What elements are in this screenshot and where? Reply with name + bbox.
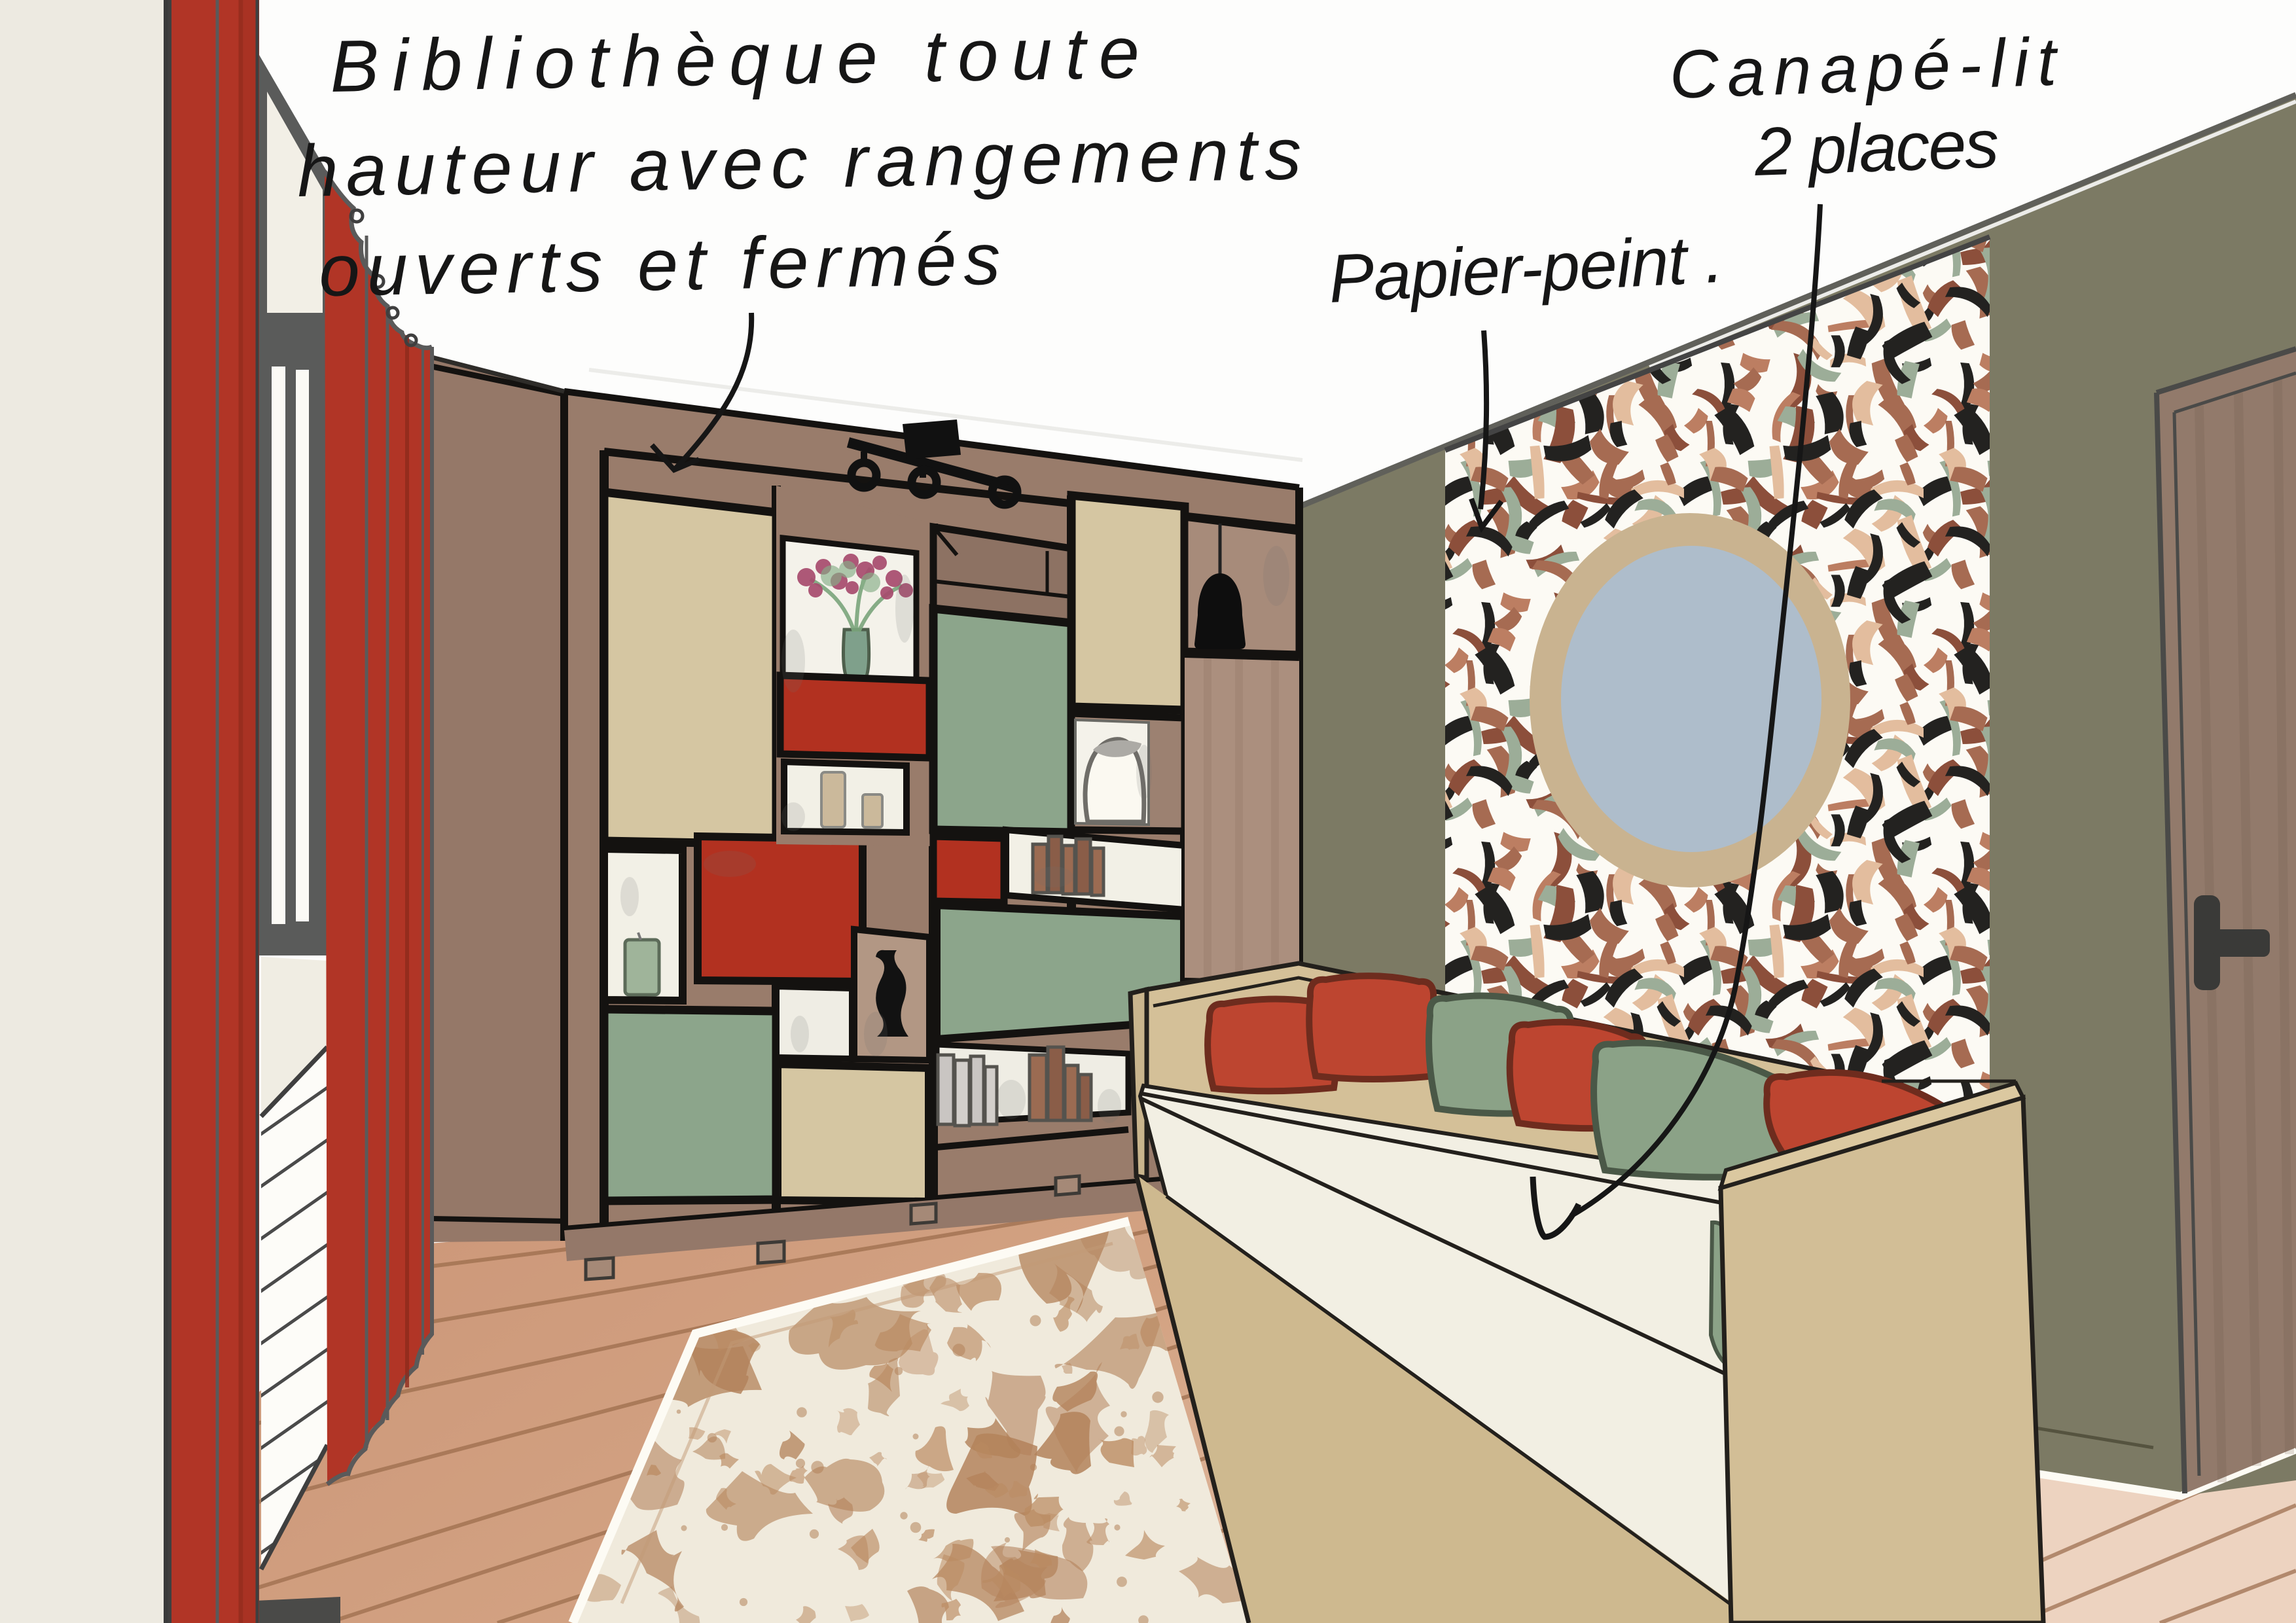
svg-text:Canapé-lit: Canapé-lit — [1668, 24, 2066, 113]
svg-text:2 places: 2 places — [1753, 106, 1999, 190]
svg-text:Bibliothèque toute: Bibliothèque toute — [329, 11, 1153, 107]
svg-text:ouverts et fermés: ouverts et fermés — [318, 218, 1008, 312]
